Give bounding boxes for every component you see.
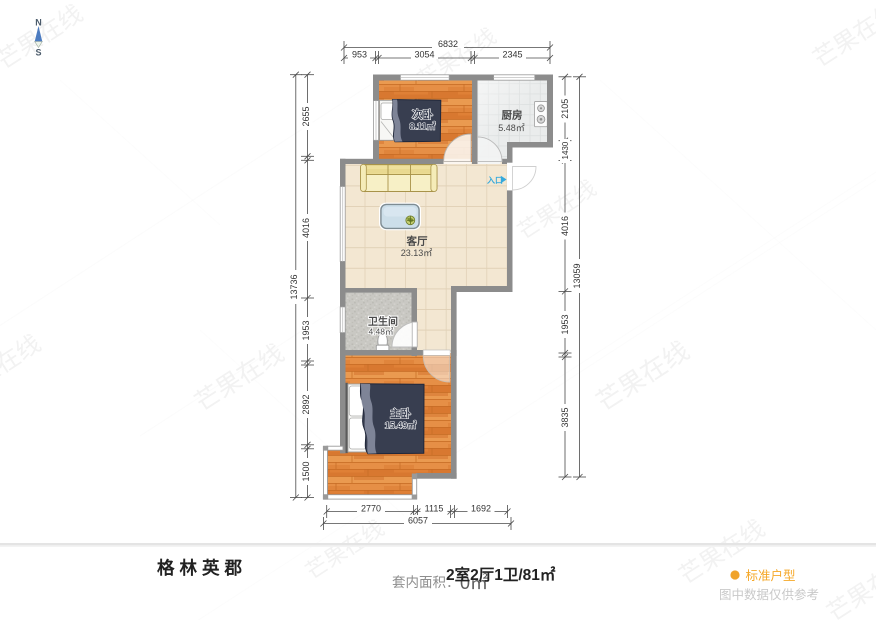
svg-text:标准户型: 标准户型: [746, 568, 796, 583]
svg-text:1953: 1953: [301, 320, 311, 340]
svg-text:入口: 入口: [486, 176, 503, 185]
svg-text:图中数据仅供参考: 图中数据仅供参考: [719, 587, 819, 602]
svg-text:6057: 6057: [408, 516, 428, 526]
svg-text:2345: 2345: [502, 50, 522, 60]
svg-text:8.11㎡: 8.11㎡: [409, 121, 435, 132]
svg-text:2655: 2655: [301, 106, 311, 126]
svg-text:23.13㎡: 23.13㎡: [401, 248, 433, 258]
svg-text:1115: 1115: [425, 504, 444, 514]
svg-text:1953: 1953: [560, 314, 570, 334]
svg-text:13059: 13059: [572, 263, 582, 288]
svg-text:1500: 1500: [301, 461, 311, 481]
svg-text:主卧: 主卧: [390, 407, 411, 420]
svg-text:5.48㎡: 5.48㎡: [498, 123, 525, 133]
svg-text:格林英郡: 格林英郡: [157, 558, 247, 578]
svg-text:次卧: 次卧: [412, 108, 433, 121]
svg-text:1430: 1430: [561, 141, 570, 159]
svg-text:4016: 4016: [560, 216, 570, 236]
svg-text:4.48㎡: 4.48㎡: [368, 327, 394, 337]
svg-text:3835: 3835: [560, 407, 570, 427]
svg-text:2室2厅1卫/81㎡: 2室2厅1卫/81㎡: [446, 565, 556, 584]
svg-text:2105: 2105: [560, 99, 570, 119]
svg-text:厨房: 厨房: [502, 109, 523, 122]
svg-text:953: 953: [352, 50, 367, 60]
svg-text:S: S: [35, 48, 41, 58]
svg-text:客厅: 客厅: [406, 235, 428, 248]
svg-text:2892: 2892: [301, 394, 311, 414]
svg-text:15.49㎡: 15.49㎡: [385, 420, 417, 431]
svg-text:1692: 1692: [471, 504, 491, 514]
svg-text:4016: 4016: [301, 218, 311, 238]
svg-text:6832: 6832: [438, 39, 458, 49]
svg-text:2770: 2770: [361, 504, 381, 514]
svg-text:13736: 13736: [289, 274, 299, 299]
svg-text:3054: 3054: [414, 50, 434, 60]
